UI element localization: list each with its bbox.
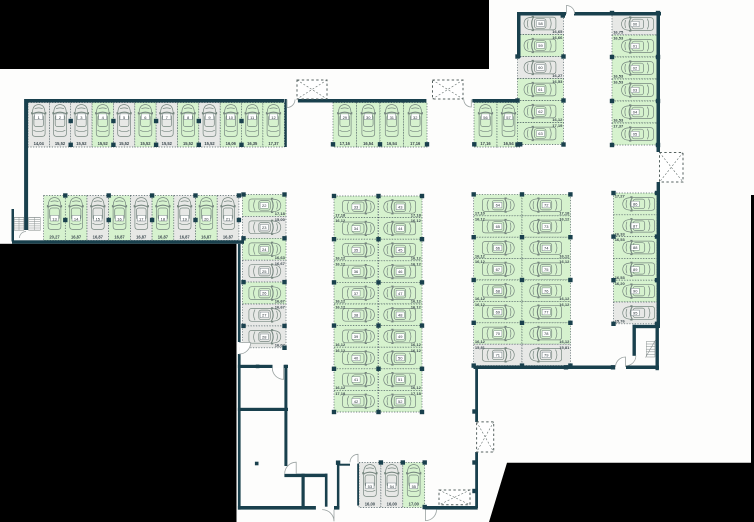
- svg-text:16,12: 16,12: [335, 299, 346, 304]
- svg-text:01: 01: [633, 44, 638, 49]
- svg-text:17,37: 17,37: [613, 124, 624, 129]
- svg-text:16,67: 16,67: [275, 305, 286, 310]
- svg-text:18: 18: [161, 216, 166, 221]
- svg-text:22: 22: [262, 203, 267, 208]
- svg-text:32: 32: [413, 115, 418, 120]
- svg-text:16,12: 16,12: [335, 256, 346, 261]
- svg-text:58: 58: [538, 21, 543, 26]
- svg-text:29: 29: [343, 115, 348, 120]
- svg-text:16,12: 16,12: [411, 305, 422, 310]
- svg-text:74: 74: [544, 246, 549, 251]
- svg-text:65: 65: [496, 224, 501, 229]
- svg-text:16,12: 16,12: [552, 117, 563, 122]
- svg-text:15,52: 15,52: [140, 141, 151, 146]
- svg-text:03: 03: [633, 88, 638, 93]
- svg-text:66: 66: [496, 246, 501, 251]
- svg-text:16,12: 16,12: [411, 299, 422, 304]
- svg-text:17: 17: [139, 216, 144, 221]
- svg-text:75: 75: [544, 267, 549, 272]
- svg-text:16,12: 16,12: [411, 385, 422, 390]
- svg-text:53: 53: [368, 484, 373, 489]
- svg-text:15,52: 15,52: [55, 141, 66, 146]
- svg-text:54: 54: [390, 484, 395, 489]
- svg-text:16,12: 16,12: [475, 339, 486, 344]
- svg-text:88: 88: [633, 245, 638, 250]
- svg-text:20,27: 20,27: [49, 234, 60, 239]
- svg-text:15,52: 15,52: [162, 141, 173, 146]
- svg-text:16,53: 16,53: [613, 36, 624, 41]
- svg-text:62: 62: [538, 109, 543, 114]
- svg-text:16,87: 16,87: [179, 234, 190, 239]
- svg-text:17,27: 17,27: [615, 194, 626, 199]
- svg-text:17,37: 17,37: [268, 141, 279, 146]
- svg-text:16,12: 16,12: [335, 385, 346, 390]
- svg-text:16,54: 16,54: [503, 141, 514, 146]
- svg-text:17,18: 17,18: [559, 211, 570, 216]
- svg-text:00: 00: [633, 22, 638, 27]
- svg-text:34: 34: [354, 226, 359, 231]
- svg-text:02: 02: [633, 66, 638, 71]
- svg-text:46: 46: [398, 269, 403, 274]
- svg-text:16,12: 16,12: [335, 305, 346, 310]
- svg-text:42: 42: [354, 399, 359, 404]
- svg-text:17,16: 17,16: [480, 141, 491, 146]
- svg-text:16,12: 16,12: [335, 342, 346, 347]
- svg-text:16,20: 16,20: [615, 281, 626, 286]
- svg-text:95: 95: [633, 311, 638, 316]
- svg-text:17,10: 17,10: [475, 211, 486, 216]
- svg-text:16,12: 16,12: [559, 259, 570, 264]
- svg-text:47: 47: [398, 291, 403, 296]
- svg-text:16,12: 16,12: [475, 296, 486, 301]
- svg-text:76: 76: [544, 288, 549, 293]
- svg-text:13: 13: [52, 216, 57, 221]
- svg-text:60: 60: [538, 65, 543, 70]
- svg-text:16,87: 16,87: [93, 234, 104, 239]
- svg-text:15,00: 15,00: [275, 217, 286, 222]
- svg-text:16,87: 16,87: [114, 234, 125, 239]
- svg-text:17,18: 17,18: [411, 212, 422, 217]
- svg-text:48: 48: [398, 312, 403, 317]
- svg-text:16,53: 16,53: [552, 79, 563, 84]
- svg-text:16,67: 16,67: [275, 261, 286, 266]
- svg-text:15,52: 15,52: [183, 141, 194, 146]
- svg-text:15,52: 15,52: [119, 141, 130, 146]
- svg-text:19: 19: [182, 216, 187, 221]
- svg-text:16,12: 16,12: [335, 348, 346, 353]
- svg-text:86: 86: [633, 202, 638, 207]
- svg-text:16,53: 16,53: [615, 275, 626, 280]
- svg-text:49: 49: [398, 334, 403, 339]
- svg-text:59: 59: [538, 43, 543, 48]
- svg-text:16,53: 16,53: [613, 118, 624, 123]
- svg-text:73: 73: [544, 224, 549, 229]
- svg-text:20: 20: [204, 216, 209, 221]
- svg-text:16,12: 16,12: [559, 253, 570, 258]
- svg-text:16,12: 16,12: [559, 296, 570, 301]
- svg-text:51: 51: [398, 377, 403, 382]
- svg-text:45: 45: [398, 248, 403, 253]
- svg-text:87: 87: [633, 223, 638, 228]
- svg-text:78: 78: [544, 331, 549, 336]
- svg-text:12: 12: [271, 115, 276, 120]
- svg-text:16,00: 16,00: [387, 501, 398, 506]
- svg-text:68: 68: [496, 288, 501, 293]
- svg-text:14: 14: [74, 216, 79, 221]
- svg-text:35: 35: [354, 248, 359, 253]
- svg-text:16,12: 16,12: [411, 342, 422, 347]
- svg-text:16,12: 16,12: [475, 253, 486, 258]
- svg-text:16,54: 16,54: [363, 141, 374, 146]
- svg-text:16,12: 16,12: [411, 218, 422, 223]
- svg-text:79: 79: [544, 353, 549, 358]
- svg-text:39: 39: [354, 334, 359, 339]
- svg-text:15,81: 15,81: [559, 345, 570, 350]
- svg-text:50: 50: [398, 356, 403, 361]
- svg-text:16,66: 16,66: [552, 35, 563, 40]
- svg-text:26: 26: [262, 291, 267, 296]
- svg-text:40: 40: [354, 356, 359, 361]
- svg-text:16,87: 16,87: [201, 234, 212, 239]
- svg-text:16,12: 16,12: [475, 302, 486, 307]
- svg-text:16,12: 16,12: [335, 261, 346, 266]
- svg-text:90: 90: [633, 289, 638, 294]
- svg-text:56: 56: [483, 115, 488, 120]
- svg-text:16,35: 16,35: [247, 141, 258, 146]
- svg-text:63: 63: [538, 131, 543, 136]
- svg-text:31: 31: [390, 115, 395, 120]
- svg-text:16,54: 16,54: [387, 141, 398, 146]
- svg-text:17,00: 17,00: [409, 501, 420, 506]
- svg-text:16,53: 16,53: [613, 80, 624, 85]
- svg-text:15,76: 15,76: [615, 319, 626, 324]
- svg-text:17,18: 17,18: [335, 391, 346, 396]
- svg-text:16,87: 16,87: [136, 234, 147, 239]
- svg-text:17,16: 17,16: [340, 141, 351, 146]
- svg-text:17,19: 17,19: [552, 123, 563, 128]
- svg-text:71: 71: [496, 353, 501, 358]
- svg-text:16,12: 16,12: [411, 348, 422, 353]
- svg-text:05: 05: [633, 132, 638, 137]
- svg-text:16,65: 16,65: [552, 29, 563, 34]
- svg-text:16,12: 16,12: [335, 218, 346, 223]
- svg-text:24: 24: [262, 247, 267, 252]
- svg-text:16,12: 16,12: [559, 339, 570, 344]
- svg-text:43: 43: [398, 204, 403, 209]
- svg-text:30: 30: [366, 115, 371, 120]
- svg-text:16,00: 16,00: [365, 501, 376, 506]
- svg-text:16,75: 16,75: [613, 30, 624, 35]
- svg-text:27: 27: [262, 313, 267, 318]
- svg-text:17,18: 17,18: [411, 391, 422, 396]
- svg-text:28: 28: [262, 334, 267, 339]
- svg-text:25: 25: [262, 269, 267, 274]
- svg-text:61: 61: [538, 87, 543, 92]
- svg-text:04: 04: [633, 110, 638, 115]
- svg-text:16,06: 16,06: [226, 141, 237, 146]
- svg-text:16,67: 16,67: [275, 299, 286, 304]
- svg-text:16,27: 16,27: [552, 73, 563, 78]
- svg-text:16,87: 16,87: [71, 234, 82, 239]
- svg-text:15,52: 15,52: [204, 141, 215, 146]
- svg-text:57: 57: [506, 115, 511, 120]
- svg-text:16,53: 16,53: [613, 74, 624, 79]
- svg-text:14,04: 14,04: [34, 141, 45, 146]
- svg-text:16: 16: [117, 216, 122, 221]
- svg-text:70: 70: [496, 331, 501, 336]
- svg-text:38: 38: [354, 312, 359, 317]
- svg-text:15,81: 15,81: [475, 345, 486, 350]
- svg-text:21: 21: [226, 216, 231, 221]
- svg-text:89: 89: [633, 267, 638, 272]
- svg-text:17,18: 17,18: [335, 212, 346, 217]
- svg-text:33: 33: [354, 204, 359, 209]
- svg-text:16,12: 16,12: [559, 302, 570, 307]
- svg-text:15,52: 15,52: [76, 141, 87, 146]
- svg-text:16,63: 16,63: [275, 255, 286, 260]
- svg-text:16,33: 16,33: [615, 231, 626, 236]
- svg-text:16,12: 16,12: [411, 261, 422, 266]
- svg-text:72: 72: [544, 203, 549, 208]
- svg-text:15: 15: [96, 216, 101, 221]
- svg-text:77: 77: [544, 310, 549, 315]
- svg-text:37: 37: [354, 291, 359, 296]
- svg-text:16,87: 16,87: [158, 234, 169, 239]
- svg-text:16,12: 16,12: [411, 256, 422, 261]
- svg-text:17,18: 17,18: [275, 211, 286, 216]
- svg-text:10: 10: [229, 115, 234, 120]
- svg-text:41: 41: [354, 377, 359, 382]
- svg-text:36: 36: [354, 269, 359, 274]
- svg-text:16,12: 16,12: [559, 216, 570, 221]
- svg-text:67: 67: [496, 267, 501, 272]
- svg-text:44: 44: [398, 226, 403, 231]
- svg-text:55: 55: [412, 484, 417, 489]
- svg-text:23: 23: [262, 225, 267, 230]
- svg-text:16,12: 16,12: [475, 216, 486, 221]
- svg-text:52: 52: [398, 399, 403, 404]
- svg-text:69: 69: [496, 310, 501, 315]
- svg-text:16,12: 16,12: [475, 259, 486, 264]
- svg-text:64: 64: [496, 203, 501, 208]
- svg-text:16,87: 16,87: [223, 234, 234, 239]
- svg-text:16,53: 16,53: [615, 237, 626, 242]
- svg-text:15,52: 15,52: [98, 141, 109, 146]
- svg-text:17,16: 17,16: [410, 141, 421, 146]
